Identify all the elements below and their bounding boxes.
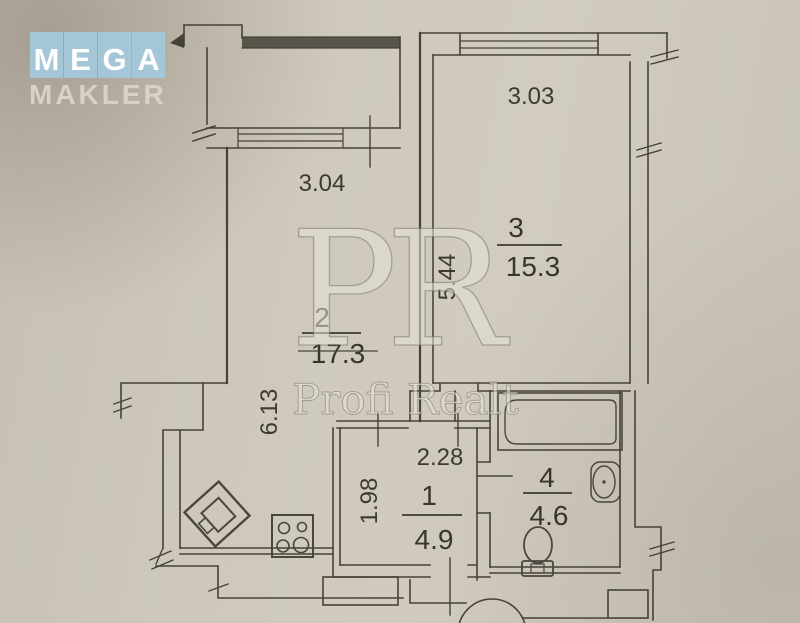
logo-word: MAKLER	[29, 79, 167, 110]
room4-number: 4	[539, 462, 555, 493]
dim-hallway-width: 2.28	[417, 444, 464, 471]
dim-room2-depth: 6.13	[256, 389, 283, 436]
room1-area: 4.9	[415, 524, 454, 555]
shaft-box	[608, 590, 648, 618]
mega-makler-logo: M E G A MAKLER	[29, 32, 167, 110]
room4-area: 4.6	[530, 500, 569, 531]
logo-letter: E	[70, 42, 91, 77]
dim-room2-width: 3.04	[299, 170, 346, 197]
floorplan-canvas: M E G A MAKLER	[0, 0, 800, 623]
logo-letter: G	[102, 42, 126, 77]
room3-area: 15.3	[506, 251, 561, 282]
dim-hallway-depth: 1.98	[356, 478, 383, 525]
floorplan-photo: M E G A MAKLER	[0, 0, 800, 623]
entrance-door	[323, 577, 398, 605]
break-arrow-icon	[170, 33, 184, 48]
toilet-icon	[522, 527, 553, 576]
stair-arc	[458, 599, 526, 623]
kitchen-sink-icon	[185, 482, 250, 547]
dim-bedroom-width: 3.03	[508, 83, 555, 110]
room3-number: 3	[508, 212, 524, 243]
logo-letter: A	[137, 42, 159, 77]
balcony-railing	[242, 37, 400, 48]
wash-basin-icon	[591, 462, 620, 502]
watermark: PR Profi Realt	[290, 196, 519, 424]
watermark-agency: Profi Realt	[292, 375, 519, 424]
room1-number: 1	[421, 480, 437, 511]
stove-icon	[272, 515, 313, 557]
watermark-initials: PR	[290, 196, 511, 383]
logo-letter: M	[34, 42, 60, 77]
